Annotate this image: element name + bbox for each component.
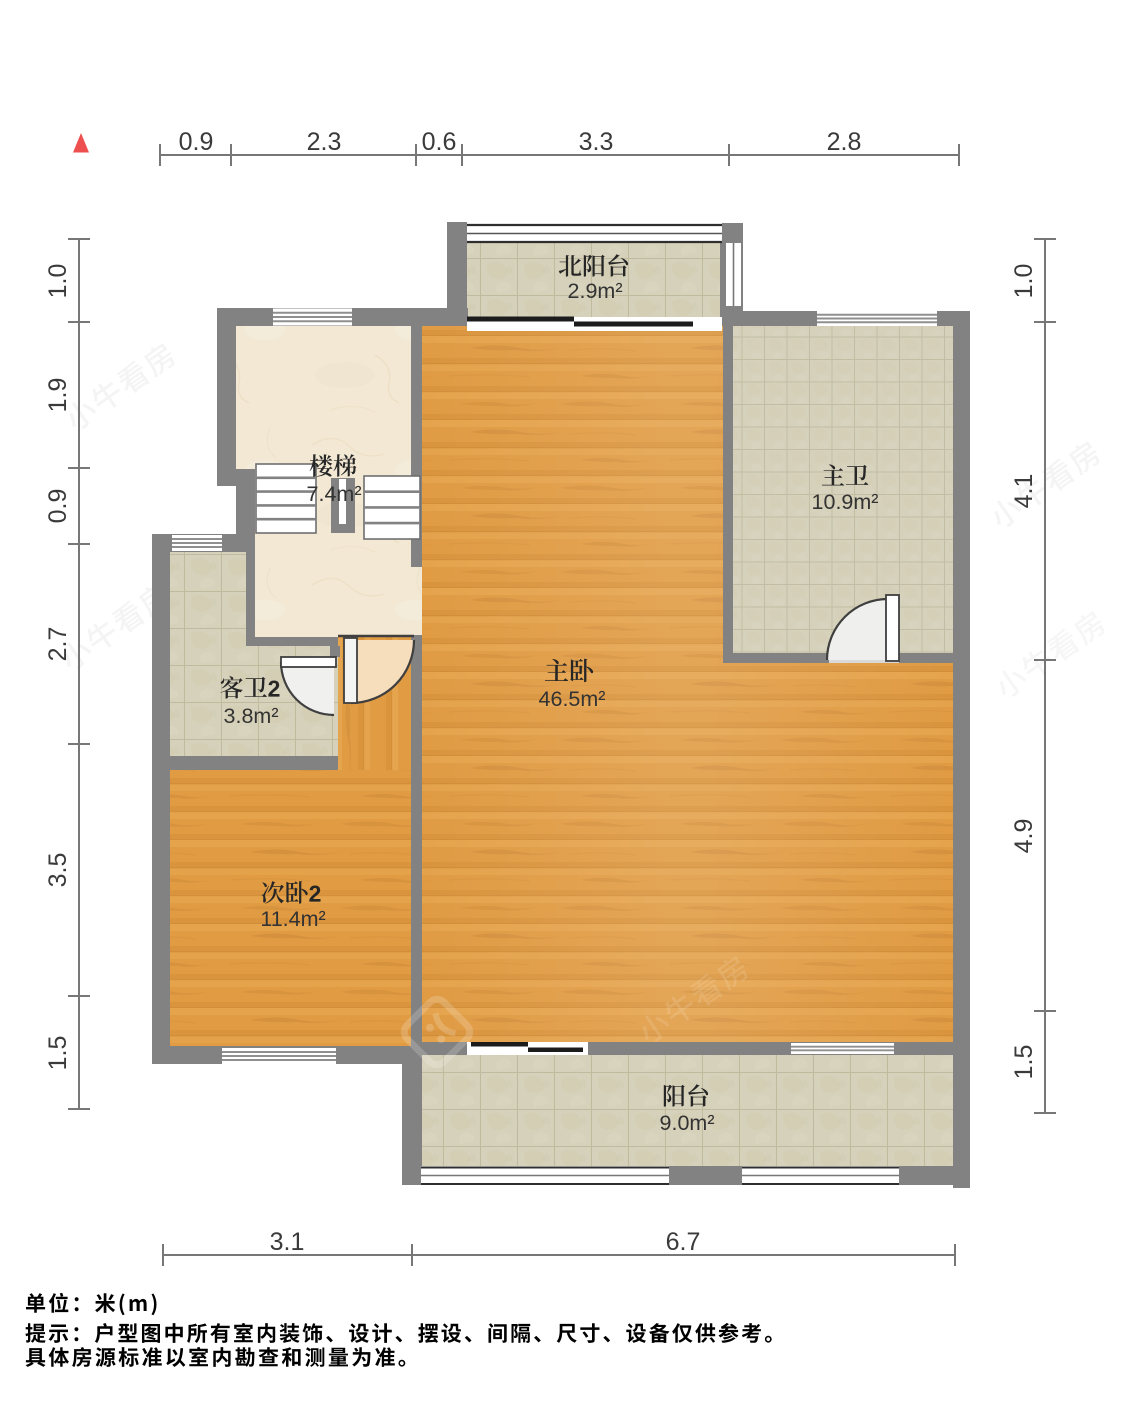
svg-text:0.9: 0.9 (44, 489, 72, 524)
svg-text:3.1: 3.1 (270, 1228, 305, 1256)
svg-text:3.8m²: 3.8m² (224, 704, 279, 728)
svg-text:11.4m²: 11.4m² (260, 907, 325, 931)
svg-text:6.7: 6.7 (666, 1228, 701, 1256)
svg-text:46.5m²: 46.5m² (539, 687, 606, 711)
svg-text:1.9: 1.9 (44, 378, 72, 413)
svg-text:0.9: 0.9 (179, 128, 214, 156)
svg-text:2.9m²: 2.9m² (568, 279, 623, 303)
svg-text:9.0m²: 9.0m² (660, 1111, 715, 1135)
svg-text:1.5: 1.5 (44, 1036, 72, 1071)
svg-text:2.8: 2.8 (827, 128, 862, 156)
svg-text:4.1: 4.1 (1010, 474, 1038, 509)
svg-text:4.9: 4.9 (1010, 819, 1038, 854)
svg-text:2.7: 2.7 (44, 627, 72, 662)
svg-text:3.3: 3.3 (579, 128, 614, 156)
svg-text:1.0: 1.0 (1010, 264, 1038, 299)
svg-text:1.5: 1.5 (1010, 1045, 1038, 1080)
svg-text:0.6: 0.6 (422, 128, 457, 156)
svg-text:1.0: 1.0 (44, 264, 72, 299)
svg-text:3.5: 3.5 (44, 853, 72, 888)
svg-text:2.3: 2.3 (307, 128, 342, 156)
svg-text:10.9m²: 10.9m² (812, 490, 879, 514)
svg-text:7.4m²: 7.4m² (307, 482, 362, 506)
